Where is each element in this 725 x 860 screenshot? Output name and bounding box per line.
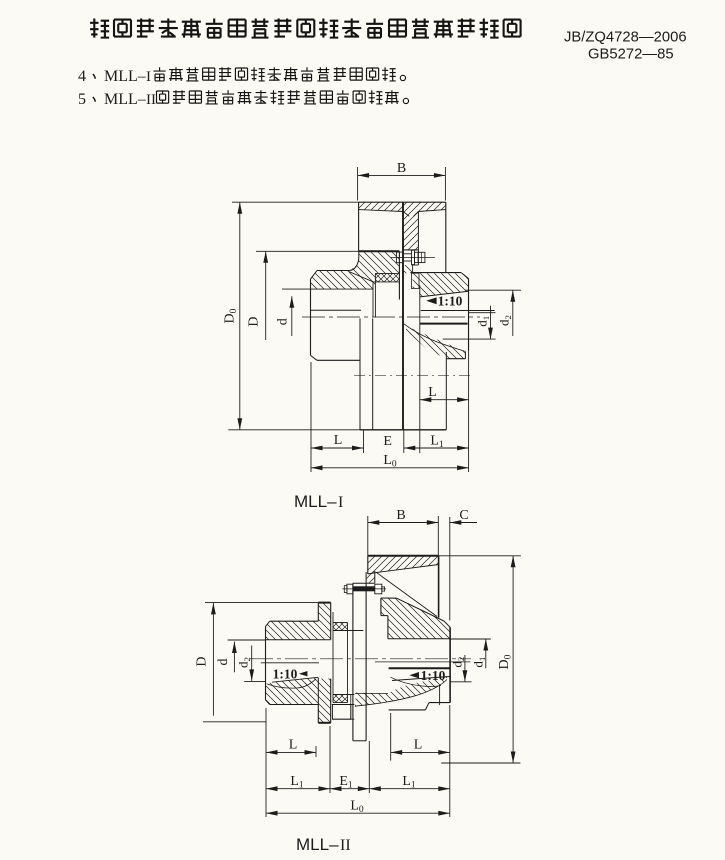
svg-text:L: L (289, 738, 298, 753)
svg-text:5: 5 (78, 91, 86, 108)
svg-text:D: D (194, 656, 209, 666)
svg-text:D: D (247, 316, 262, 326)
svg-text:4: 4 (78, 68, 86, 85)
svg-text:MLL–: MLL– (296, 835, 339, 854)
svg-text:I: I (338, 494, 343, 511)
svg-text:MLL–: MLL– (104, 91, 147, 108)
svg-text:L: L (428, 385, 437, 400)
svg-text:II: II (340, 837, 351, 854)
svg-text:1:10: 1:10 (421, 668, 446, 683)
svg-text:JB/ZQ4728—2006: JB/ZQ4728—2006 (564, 30, 687, 46)
svg-text:d: d (216, 659, 231, 666)
svg-text:1:10: 1:10 (273, 667, 298, 682)
svg-text:MLL–: MLL– (104, 68, 147, 85)
svg-text:B: B (397, 161, 406, 176)
svg-text:GB5272—85: GB5272—85 (588, 47, 674, 63)
svg-text:L: L (334, 433, 343, 448)
svg-text:I: I (146, 69, 151, 85)
svg-text:II: II (146, 92, 156, 108)
svg-text:B: B (396, 508, 405, 523)
svg-text:d: d (276, 318, 291, 325)
svg-text:E: E (383, 434, 392, 449)
svg-text:1:10: 1:10 (438, 294, 463, 309)
svg-text:L: L (414, 738, 423, 753)
svg-text:MLL–: MLL– (294, 492, 337, 511)
svg-text:C: C (459, 508, 468, 523)
